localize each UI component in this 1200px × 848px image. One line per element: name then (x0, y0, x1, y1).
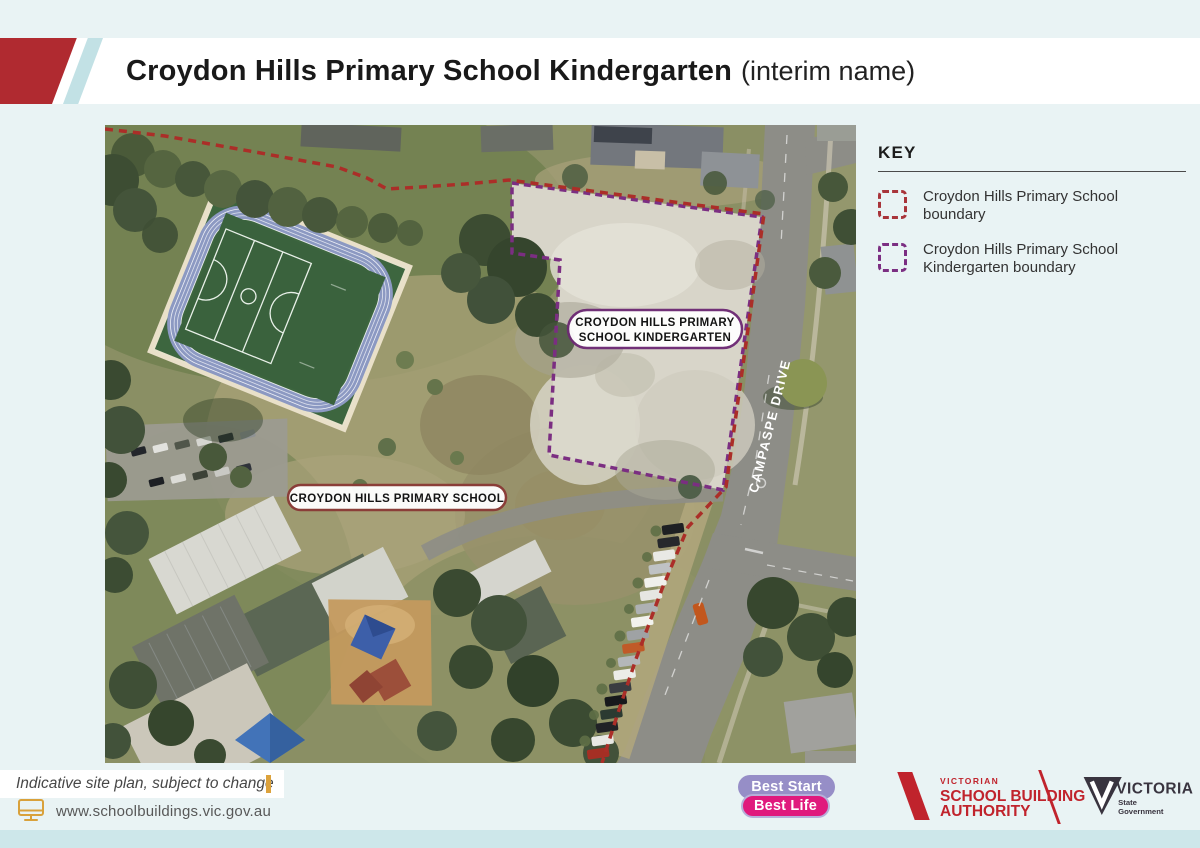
key-panel: KEY Croydon Hills Primary School boundar… (878, 143, 1186, 277)
school-boundary-label-line1: Croydon Hills Primary School (923, 188, 1118, 205)
website-url[interactable]: www.schoolbuildings.vic.gov.au (56, 803, 271, 820)
victoria-wordmark: VICTORIA (1116, 780, 1193, 797)
victoria-state: State (1118, 798, 1138, 807)
best-start-best-life-logo: Best Start Best Life (738, 775, 842, 823)
school-boundary-label-line2: boundary (923, 206, 986, 223)
aerial-site-map: CROYDON HILLS PRIMARY SCHOOL KINDERGARTE… (105, 125, 856, 763)
school-label-text: CROYDON HILLS PRIMARY SCHOOL (290, 493, 504, 505)
vsba-wordmark: VICTORIAN SCHOOL BUILDING AUTHORITY (940, 774, 1085, 819)
footer-teal-strip (0, 830, 1200, 848)
victoria-government: Government (1118, 807, 1164, 816)
disclaimer-band: Indicative site plan, subject to change (0, 770, 284, 798)
site-plan-page: Croydon Hills Primary School Kindergarte… (0, 0, 1200, 848)
kindergarten-label-line2: SCHOOL KINDERGARTEN (579, 332, 731, 344)
key-item-school-boundary: Croydon Hills Primary School boundary (878, 188, 1186, 225)
key-heading: KEY (878, 143, 1186, 172)
kindergarten-label-pill: CROYDON HILLS PRIMARY SCHOOL KINDERGARTE… (568, 310, 742, 348)
vsba-authority: AUTHORITY (940, 804, 1085, 819)
key-item-kindergarten-boundary: Croydon Hills Primary School Kindergarte… (878, 241, 1186, 278)
kindergarten-boundary-swatch (878, 243, 907, 272)
vsba-victorian: VICTORIAN (940, 774, 1085, 789)
victoria-logo-svg: VICTORIA State Government (1080, 768, 1198, 824)
disclaimer-accent-bar (266, 775, 271, 793)
school-label-pill: CROYDON HILLS PRIMARY SCHOOL (288, 485, 506, 510)
victoria-state-government-logo: VICTORIA State Government (1080, 768, 1198, 824)
page-title: Croydon Hills Primary School Kindergarte… (126, 38, 915, 104)
disclaimer-text: Indicative site plan, subject to change (16, 775, 274, 793)
kindergarten-boundary-label: Croydon Hills Primary School Kindergarte… (923, 241, 1118, 278)
monitor-icon (16, 797, 46, 825)
page-title-main: Croydon Hills Primary School Kindergarte… (126, 55, 732, 88)
aerial-site-map-svg: CROYDON HILLS PRIMARY SCHOOL KINDERGARTE… (105, 125, 856, 763)
school-boundary-swatch (878, 190, 907, 219)
vsba-slash-icon (897, 772, 929, 820)
school-boundary-label: Croydon Hills Primary School boundary (923, 188, 1118, 225)
kindergarten-boundary-label-line2: Kindergarten boundary (923, 259, 1076, 276)
kindergarten-boundary-label-line1: Croydon Hills Primary School (923, 241, 1118, 258)
best-life-pill: Best Life (741, 794, 830, 818)
vsba-logo: VICTORIAN SCHOOL BUILDING AUTHORITY (898, 770, 1070, 826)
page-title-suffix: (interim name) (741, 56, 915, 87)
kindergarten-label-line1: CROYDON HILLS PRIMARY (575, 317, 734, 329)
playground (322, 590, 440, 714)
website-row: www.schoolbuildings.vic.gov.au (16, 797, 271, 825)
vsba-school-building: SCHOOL BUILDING (940, 789, 1085, 804)
